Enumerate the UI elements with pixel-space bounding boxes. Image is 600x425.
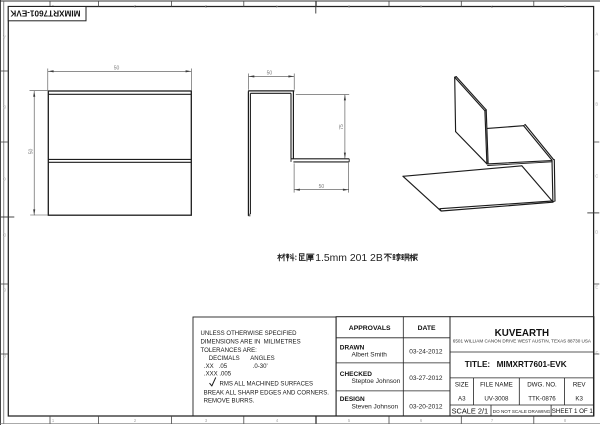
svg-text:REMOVE BURRS.: REMOVE BURRS. bbox=[204, 399, 255, 405]
svg-text:A: A bbox=[3, 35, 6, 40]
svg-text:C: C bbox=[3, 177, 6, 182]
svg-text:6501 WILLIAM CANON DRIVE WEST: 6501 WILLIAM CANON DRIVE WEST AUSTIN, TE… bbox=[453, 339, 592, 344]
svg-text:.XXX .005: .XXX .005 bbox=[204, 372, 232, 378]
svg-text:SHEET 1 OF 1: SHEET 1 OF 1 bbox=[552, 408, 594, 415]
svg-text:C: C bbox=[595, 174, 598, 179]
svg-text:K3: K3 bbox=[575, 396, 583, 403]
svg-text:A: A bbox=[595, 32, 598, 37]
svg-text:75: 75 bbox=[339, 124, 345, 130]
svg-text:UNLESS OTHERWISE SPECIFIED: UNLESS OTHERWISE SPECIFIED bbox=[201, 331, 298, 337]
svg-text:DRAWN: DRAWN bbox=[340, 345, 365, 352]
svg-text:KUVEARTH: KUVEARTH bbox=[495, 328, 549, 339]
svg-text:50: 50 bbox=[267, 71, 273, 77]
svg-text:UV-3008: UV-3008 bbox=[484, 396, 509, 403]
svg-text:.XX .05: .XX .05 bbox=[204, 364, 228, 370]
svg-text:Steptoe Johnson: Steptoe Johnson bbox=[352, 378, 401, 385]
svg-text:REV: REV bbox=[573, 382, 587, 389]
svg-text:SCALE 2/1: SCALE 2/1 bbox=[452, 406, 489, 415]
svg-text:E: E bbox=[595, 285, 598, 290]
svg-text:B: B bbox=[595, 102, 598, 107]
svg-text:MIMXRT7601-EVK: MIMXRT7601-EVK bbox=[10, 9, 80, 18]
svg-text:SIZE: SIZE bbox=[455, 382, 469, 389]
svg-text:1.5mm 201 2B: 1.5mm 201 2B bbox=[315, 253, 383, 264]
svg-text:03-27-2012: 03-27-2012 bbox=[409, 375, 443, 382]
svg-text:F: F bbox=[596, 351, 599, 356]
svg-text:50: 50 bbox=[28, 149, 34, 155]
svg-text:CHECKED: CHECKED bbox=[340, 371, 372, 378]
svg-text:FILE NAME: FILE NAME bbox=[480, 382, 513, 389]
svg-text:Steven Johnson: Steven Johnson bbox=[352, 403, 399, 410]
svg-text:DECIMALS: DECIMALS bbox=[209, 356, 240, 362]
svg-text:Albert Smith: Albert Smith bbox=[352, 352, 388, 359]
svg-text:DESIGN: DESIGN bbox=[340, 396, 365, 403]
svg-text:TOLERANCES ARE:: TOLERANCES ARE: bbox=[201, 348, 258, 354]
svg-text:D: D bbox=[595, 230, 598, 235]
svg-text:E: E bbox=[3, 288, 6, 293]
svg-text:BREAK ALL SHARP EDGES AND CORN: BREAK ALL SHARP EDGES AND CORNERS. bbox=[204, 390, 330, 396]
svg-text:B: B bbox=[3, 105, 6, 110]
svg-text:50: 50 bbox=[114, 66, 120, 72]
svg-text:DWG. NO.: DWG. NO. bbox=[527, 382, 557, 389]
svg-text:50: 50 bbox=[319, 184, 325, 190]
svg-text:ANGLES: ANGLES bbox=[250, 356, 275, 362]
svg-text:TITLE:: TITLE: bbox=[465, 360, 490, 369]
svg-text:03-24-2012: 03-24-2012 bbox=[409, 349, 443, 356]
svg-text:DIMENSIONS ARE IN MILIMETRES: DIMENSIONS ARE IN MILIMETRES bbox=[201, 340, 301, 346]
svg-text:APPROVALS: APPROVALS bbox=[349, 325, 391, 332]
svg-text:D: D bbox=[3, 233, 6, 238]
svg-text:DO NOT SCALE DRAWING: DO NOT SCALE DRAWING bbox=[493, 409, 551, 414]
svg-text:.0-30': .0-30' bbox=[253, 364, 268, 370]
svg-text:MIMXRT7601-EVK: MIMXRT7601-EVK bbox=[497, 360, 567, 369]
svg-text:RMS ALL MACHINED SURFACES: RMS ALL MACHINED SURFACES bbox=[220, 381, 314, 387]
svg-text:TTK-0876: TTK-0876 bbox=[528, 396, 556, 403]
svg-text:A3: A3 bbox=[458, 396, 466, 403]
svg-text:F: F bbox=[3, 354, 6, 359]
svg-text:DATE: DATE bbox=[418, 325, 436, 332]
svg-text:03-20-2012: 03-20-2012 bbox=[409, 403, 443, 410]
